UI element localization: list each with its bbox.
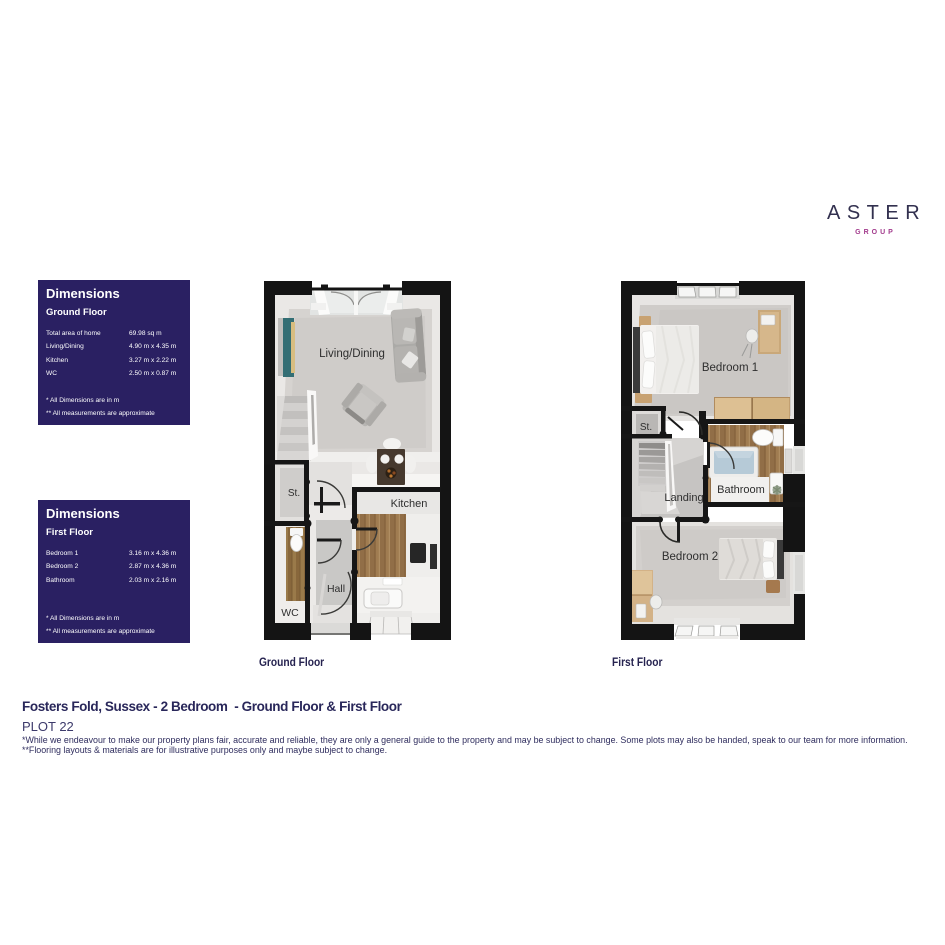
svg-text:Bedroom 1: Bedroom 1	[702, 362, 758, 374]
svg-text:Living/Dining: Living/Dining	[319, 348, 385, 360]
svg-text:Bedroom 2: Bedroom 2	[662, 551, 718, 563]
svg-text:Hall: Hall	[327, 583, 345, 595]
svg-text:St.: St.	[288, 488, 300, 499]
svg-text:Kitchen: Kitchen	[391, 498, 428, 510]
svg-text:WC: WC	[281, 607, 299, 619]
svg-text:Bathroom: Bathroom	[717, 484, 765, 496]
svg-text:Landing: Landing	[664, 492, 703, 504]
svg-text:St.: St.	[640, 422, 652, 433]
